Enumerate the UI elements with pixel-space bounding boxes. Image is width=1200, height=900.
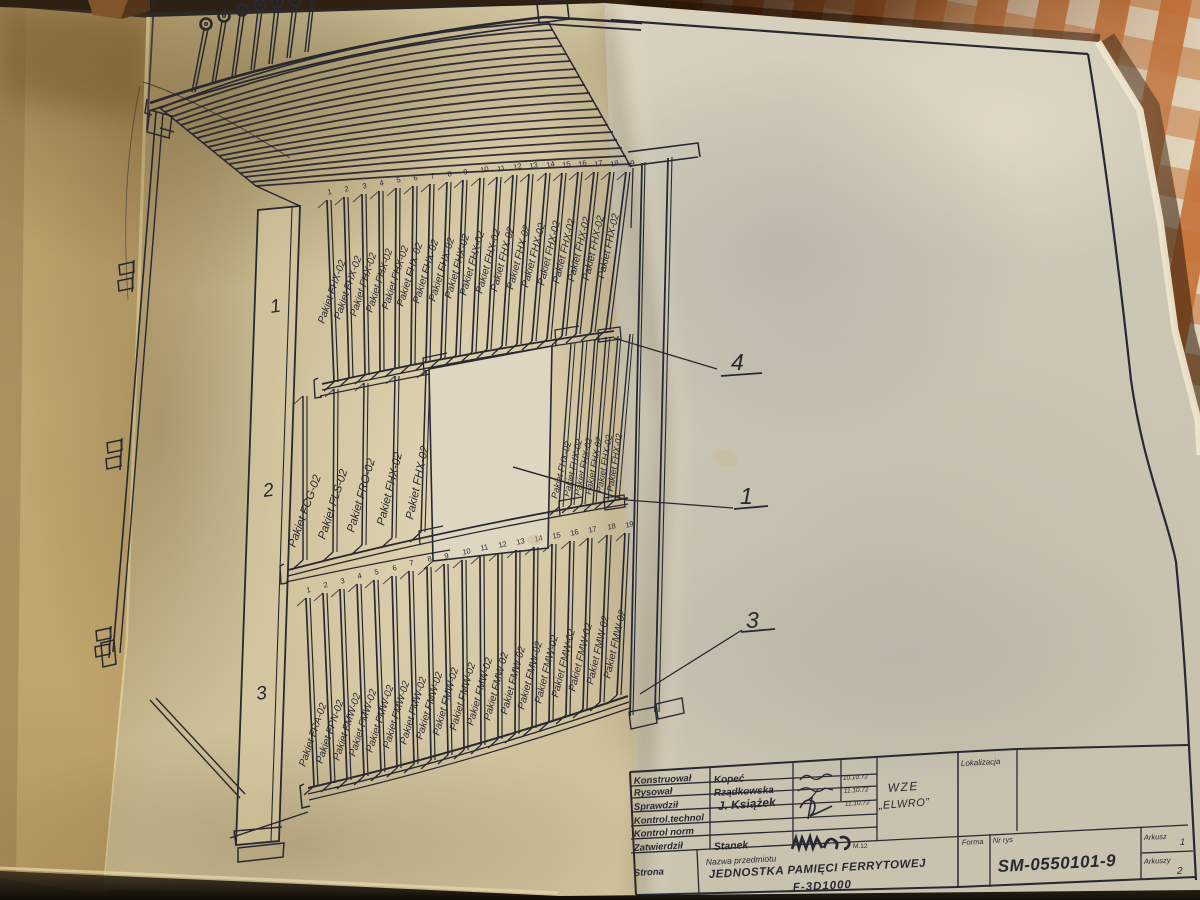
svg-text:WZE: WZE: [887, 779, 919, 795]
svg-text:Stanek: Stanek: [714, 839, 750, 853]
svg-text:Sprawdził: Sprawdził: [634, 800, 679, 813]
svg-text:3: 3: [746, 607, 759, 633]
svg-text:Nr rys: Nr rys: [993, 835, 1014, 845]
svg-text:1: 1: [740, 483, 753, 509]
svg-text:Arkuszy: Arkuszy: [1143, 856, 1172, 867]
svg-text:2: 2: [1176, 866, 1183, 877]
svg-text:Forma: Forma: [962, 837, 984, 847]
svg-text:Strona: Strona: [634, 866, 665, 879]
svg-text:Rysował: Rysował: [634, 786, 673, 799]
svg-text:Arkusz: Arkusz: [1143, 832, 1168, 842]
svg-text:Kopeć: Kopeć: [714, 773, 746, 786]
svg-text:4: 4: [731, 349, 744, 375]
svg-text:M.12: M.12: [853, 843, 868, 850]
svg-text:1: 1: [1180, 837, 1185, 847]
